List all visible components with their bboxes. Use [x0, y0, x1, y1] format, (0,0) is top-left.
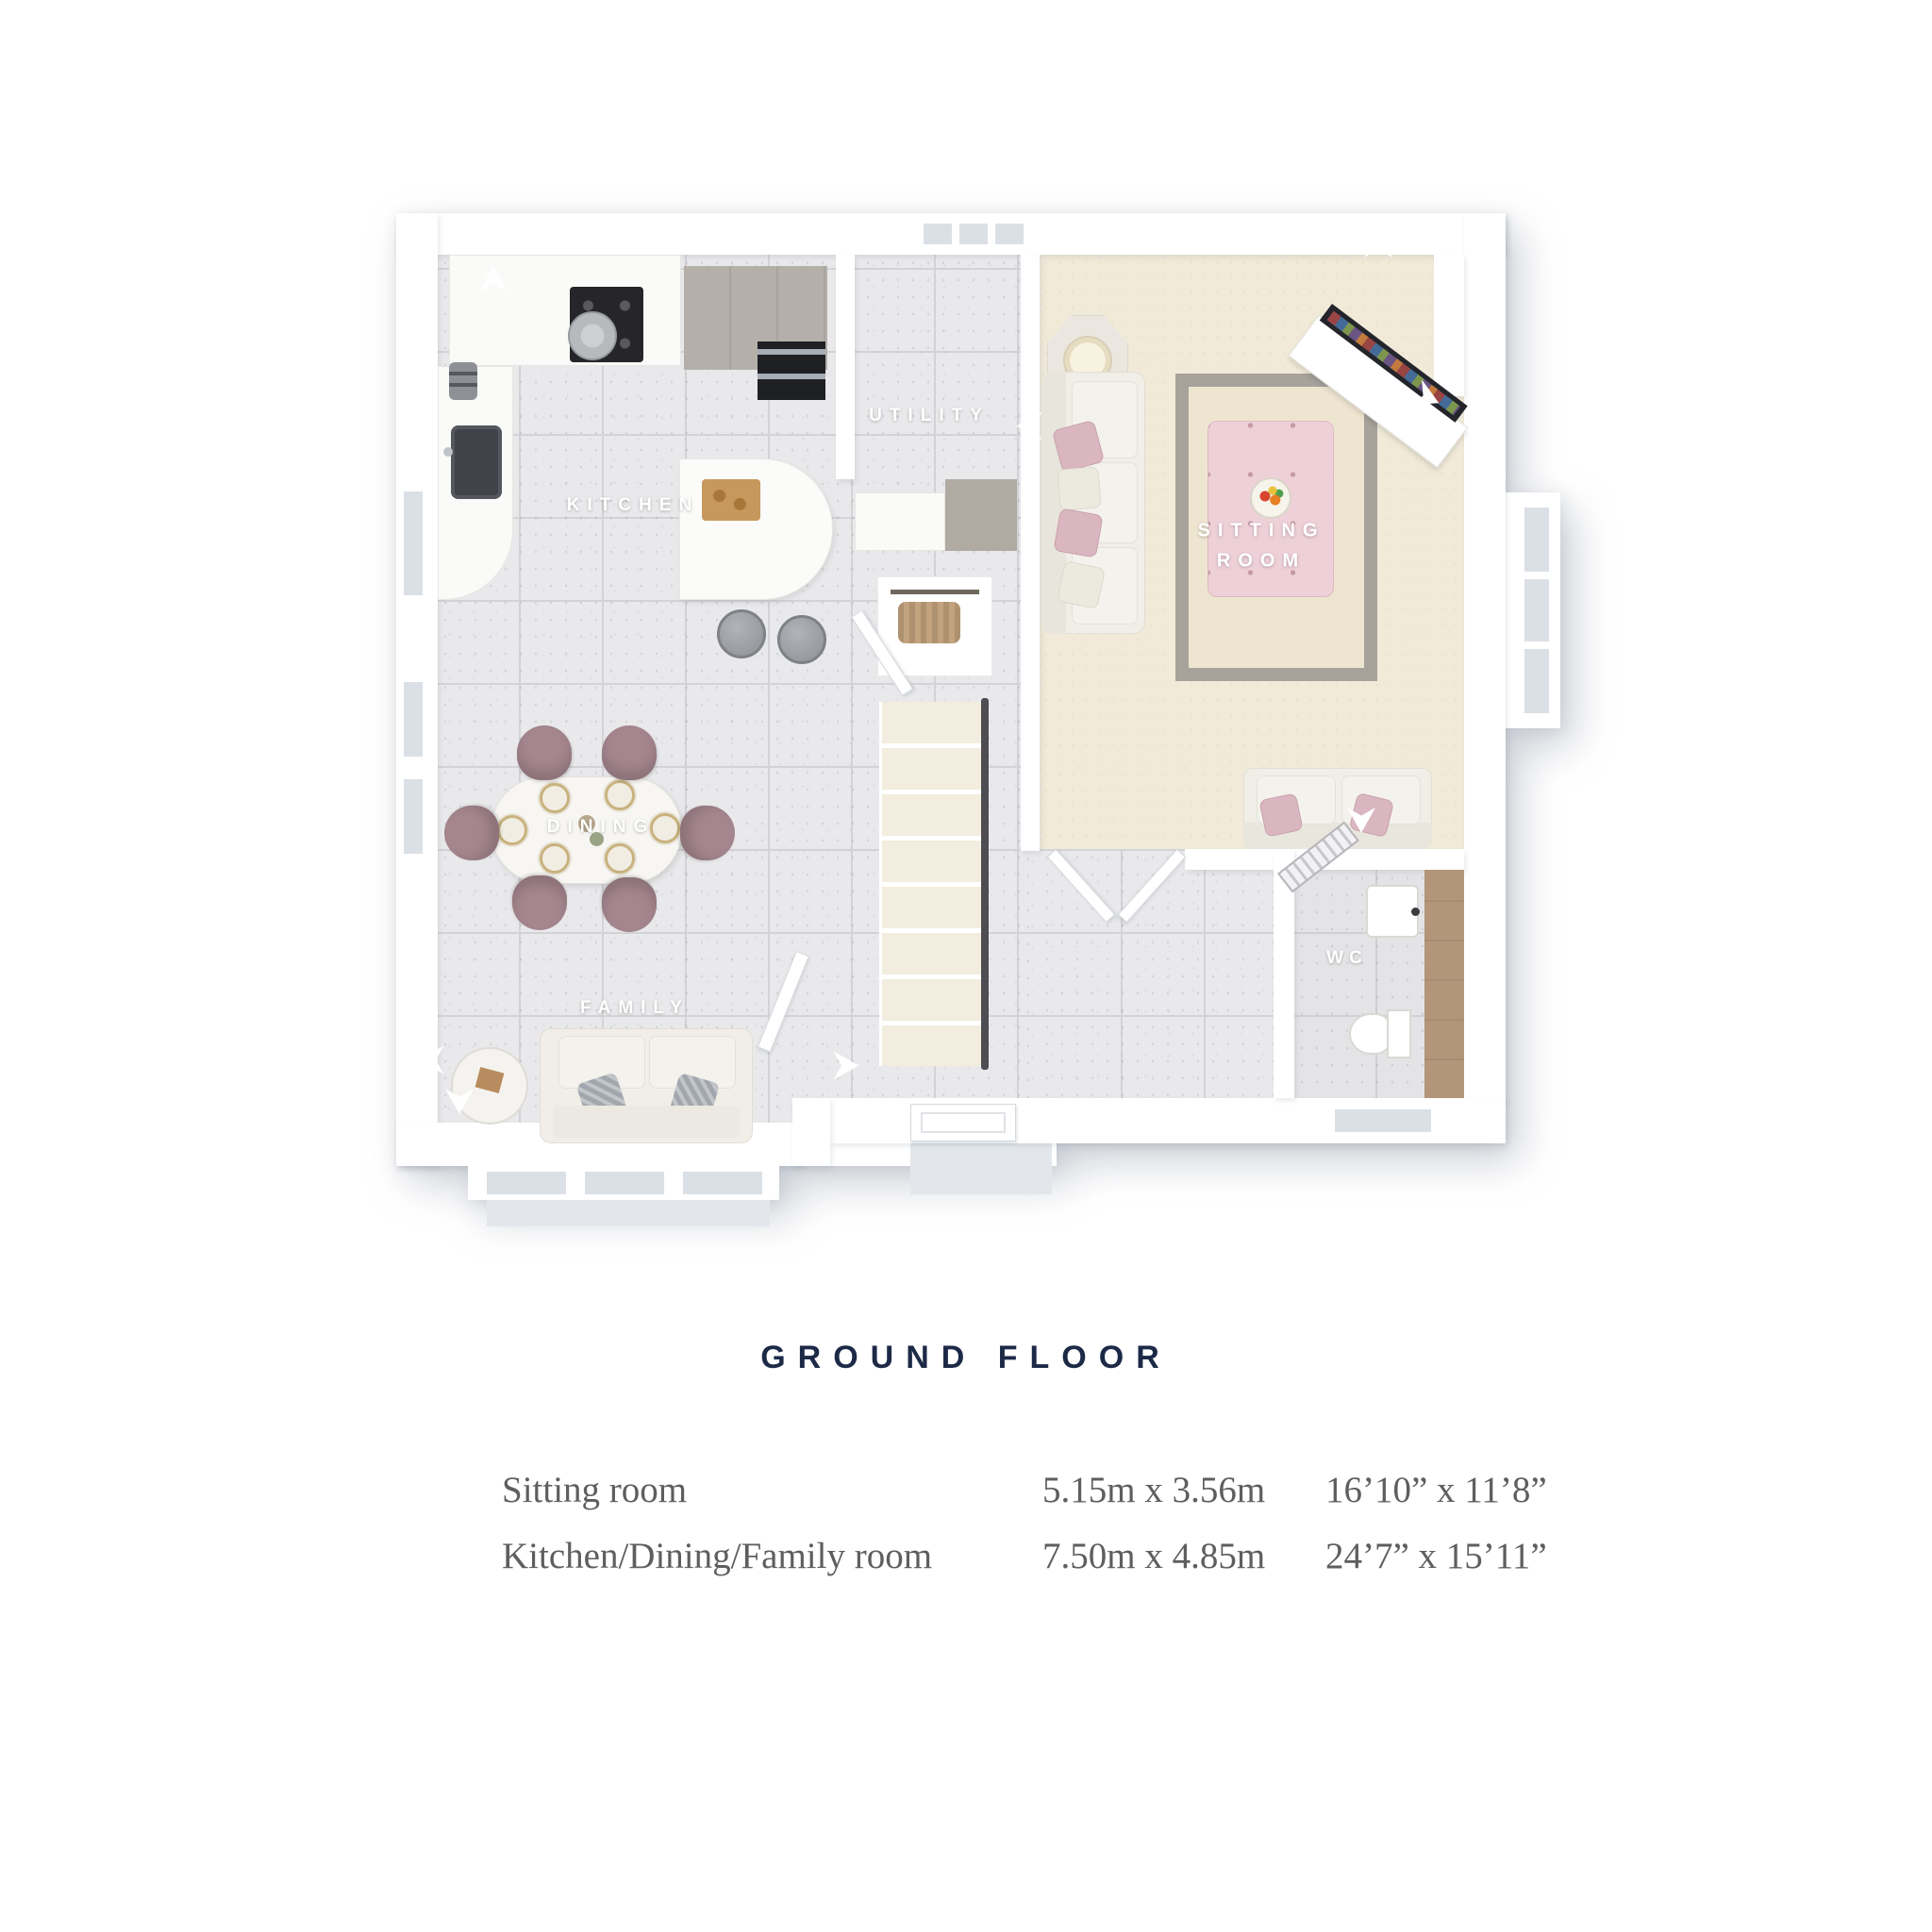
bar-stool [717, 609, 766, 658]
dining-label: DINING [547, 817, 656, 838]
kitchen-counter-top [449, 255, 681, 366]
room-metric: 7.50m x 4.85m [1042, 1528, 1325, 1583]
dining-chair [680, 806, 735, 860]
left-window-1 [396, 482, 438, 605]
wall-tv-corner [1434, 255, 1464, 396]
floor-plan: KITCHEN UTILITY SITTING ROOM DINING FAMI… [396, 213, 1575, 1307]
place-setting [540, 783, 570, 813]
utility-worktop [855, 492, 945, 551]
wall-sitting-room-left [1021, 255, 1040, 851]
left-window-3 [396, 772, 438, 861]
place-setting [497, 815, 527, 845]
utility-label: UTILITY [869, 406, 990, 426]
room-imperial: 16’10” x 11’8” [1325, 1462, 1549, 1517]
faucet [443, 447, 453, 457]
family-bay-windows [468, 1166, 779, 1200]
staircase [879, 702, 983, 1066]
pillow [1057, 466, 1102, 511]
cutting-board [702, 479, 760, 521]
dining-chair [517, 725, 572, 780]
bay-window-glass [1524, 508, 1549, 713]
stair-handrail [981, 698, 989, 1070]
toaster [449, 362, 477, 400]
sitting-room-label-line1: SITTING [1198, 521, 1325, 542]
bar-stool [777, 615, 826, 664]
double-oven [758, 341, 825, 400]
front-porch-step [910, 1143, 1052, 1194]
place-setting [605, 843, 635, 874]
dining-chair [444, 806, 499, 860]
cooking-pot [568, 311, 617, 360]
dining-chair [602, 877, 657, 932]
dimensions-table: Sitting room 5.15m x 3.56m 16’10” x 11’8… [502, 1462, 1549, 1583]
left-window-2 [396, 675, 438, 764]
pillow [1057, 560, 1106, 609]
utility-alcove-wall [945, 479, 1017, 551]
pillow [1053, 508, 1103, 558]
sofa-seat [553, 1106, 740, 1138]
family-bay-step [487, 1200, 770, 1226]
kitchen-label: KITCHEN [567, 495, 699, 516]
storage-basket [898, 602, 960, 643]
cupboard-shelf [891, 590, 979, 594]
kitchen-sink [451, 425, 502, 499]
room-name: Sitting room [502, 1462, 1042, 1517]
front-door [910, 1104, 1016, 1141]
place-setting [605, 780, 635, 810]
wc-label: WC [1326, 948, 1368, 969]
utility-window [918, 217, 1029, 251]
room-metric: 5.15m x 3.56m [1042, 1462, 1325, 1517]
place-setting [540, 843, 570, 874]
wc-vanity [1424, 870, 1464, 1098]
wc-window [1325, 1104, 1441, 1138]
hall-floor-bridge [1021, 851, 1040, 1098]
room-name: Kitchen/Dining/Family room [502, 1528, 1042, 1583]
wc-toilet-cistern [1387, 1009, 1411, 1058]
wall-family-step-connector [792, 1098, 830, 1166]
room-imperial: 24’7” x 15’11” [1325, 1528, 1549, 1583]
sitting-room-label-line2: ROOM [1217, 551, 1306, 573]
page: KITCHEN UTILITY SITTING ROOM DINING FAMI… [0, 0, 1932, 1932]
wall-right [1464, 213, 1506, 1102]
pillow [1258, 792, 1303, 837]
fruit-bowl [1250, 477, 1291, 519]
wc-tap [1411, 908, 1420, 916]
page-title: GROUND FLOOR [0, 1340, 1932, 1376]
dining-chair [512, 875, 567, 930]
family-label: FAMILY [580, 998, 690, 1019]
dining-chair [602, 725, 657, 780]
wall-kitchen-utility-partition [836, 255, 855, 479]
